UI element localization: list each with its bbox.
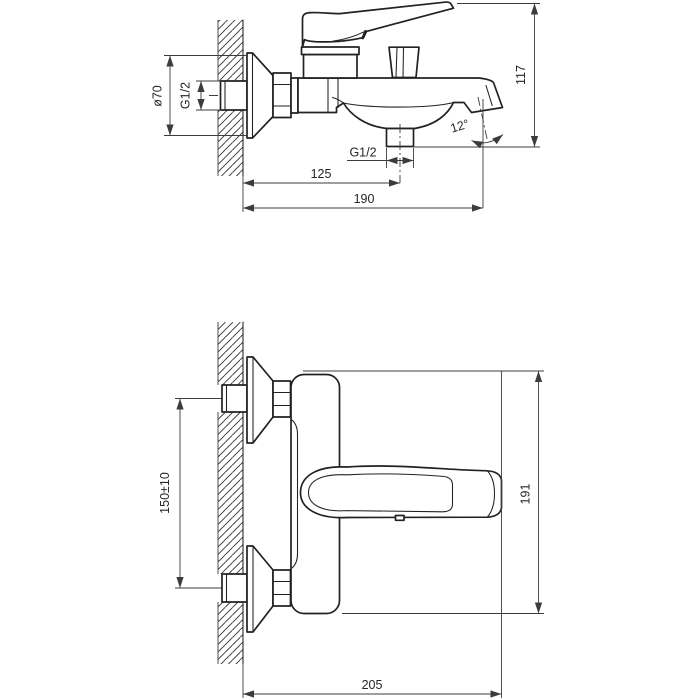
wall-section-front [218,322,243,698]
lower-escutcheon [247,546,273,632]
upper-escutcheon [247,357,273,443]
dimension-117: 117 [414,4,540,148]
dim-label-117: 117 [514,65,528,85]
dimension-g12-outlet: G1/2 [347,146,414,169]
dim-label-g12-inlet: G1/2 [179,82,193,109]
dim-label-angle12: 12° [449,117,471,136]
dim-label-dia70: ø70 [151,85,165,107]
lower-hex-nut [273,570,291,606]
escutcheon [247,53,273,138]
dimension-205: 205 [243,371,502,698]
dimension-150: 150±10 [158,399,180,589]
cartridge-housing [302,47,360,78]
spout [298,78,503,129]
drawing-canvas: ø70 G1/2 117 12° G1/2 [0,0,700,700]
connector-ring [291,78,298,113]
dimension-190: 190 [243,192,483,208]
technical-drawing: ø70 G1/2 117 12° G1/2 [0,0,700,700]
front-view: 150±10 191 205 [158,322,544,698]
dim-label-g12-outlet: G1/2 [349,146,376,160]
dim-label-150: 150±10 [158,472,172,514]
lever-handle [303,2,454,47]
wall-section [218,20,243,212]
dim-label-190: 190 [354,192,375,206]
lever-handle-front [300,466,501,520]
dim-label-205: 205 [362,678,383,692]
dim-label-125: 125 [311,167,332,181]
lower-inlet-nipple [222,574,247,602]
handle-notch [396,516,405,521]
dim-label-191: 191 [519,484,533,505]
dimension-angle12: 12° [449,97,503,208]
upper-inlet-nipple [222,385,247,412]
hex-nut [273,73,291,118]
diverter-knob [389,47,419,77]
side-view: ø70 G1/2 117 12° G1/2 [151,2,541,212]
dimension-125: 125 [243,167,400,183]
outlet-connection [387,124,414,183]
inlet-nipple [221,81,248,110]
upper-hex-nut [273,381,291,417]
